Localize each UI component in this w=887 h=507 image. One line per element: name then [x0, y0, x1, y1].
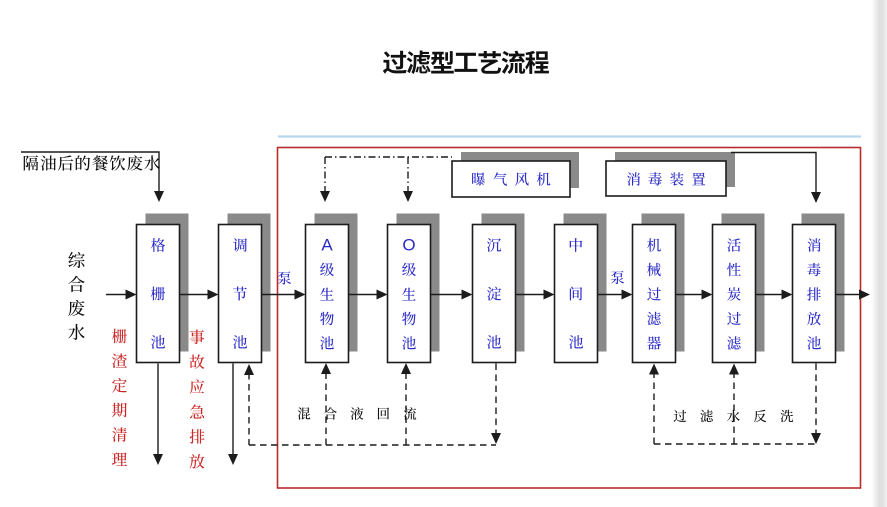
svg-text:A: A: [321, 236, 333, 255]
svg-text:O: O: [402, 236, 415, 255]
